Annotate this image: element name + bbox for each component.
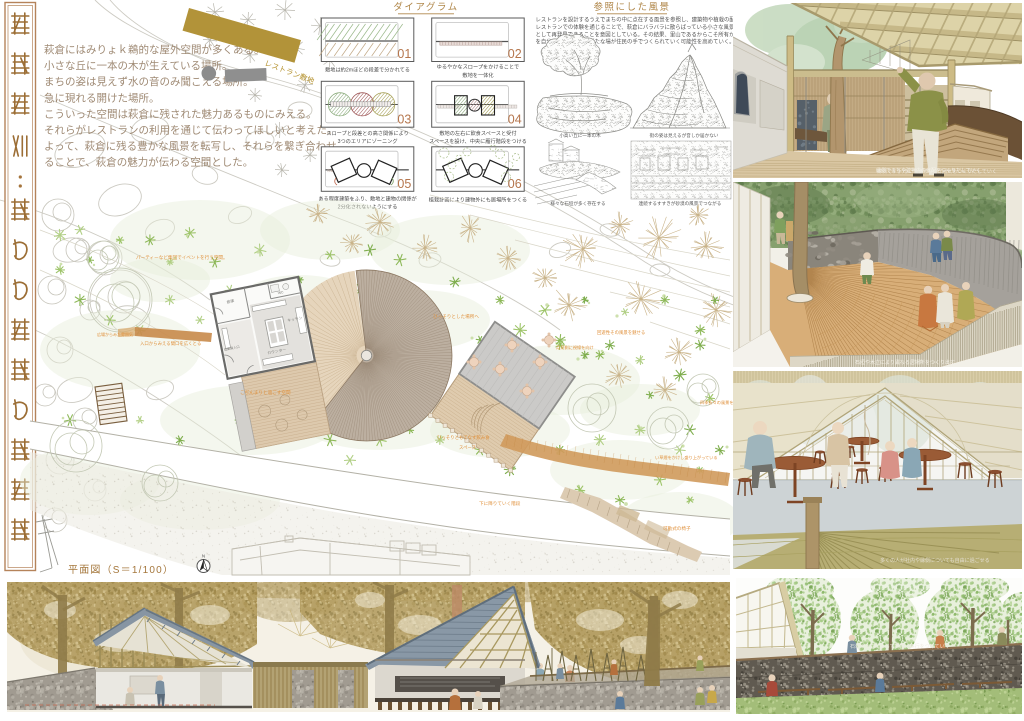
- svg-text:月見側に視線を向け: 月見側に視線を向け: [556, 344, 594, 351]
- svg-text:敷地を一体化: 敷地を一体化: [462, 71, 493, 79]
- svg-text:06: 06: [508, 177, 522, 191]
- svg-text:様々な石垣が多く存在する: 様々な石垣が多く存在する: [550, 200, 605, 207]
- svg-text:01: 01: [397, 47, 411, 61]
- svg-text:05: 05: [397, 177, 411, 191]
- svg-text:下に降りていく階段: 下に降りていく階段: [479, 500, 521, 507]
- svg-text:連続するすすきが砂漠の風景でつながる: 連続するすすきが砂漠の風景でつながる: [639, 200, 722, 207]
- svg-text:ひっそりともてなす飲み食: ひっそりともてなす飲み食: [437, 434, 490, 441]
- svg-text:ダイアグラム: ダイアグラム: [393, 1, 458, 13]
- svg-text:04: 04: [508, 113, 522, 127]
- svg-text:敷地の左右に飲食スペースと受付: 敷地の左右に飲食スペースと受付: [439, 129, 516, 137]
- svg-text:入口からみえる間口を広くとる: 入口からみえる間口を広くとる: [140, 340, 201, 347]
- svg-text:植栽計画により建物外にも居場所をつくる: 植栽計画により建物外にも居場所をつくる: [429, 196, 527, 204]
- svg-text:まちの姿は見えず水の音のみ聞こえる場所。: まちの姿は見えず水の音のみ聞こえる場所。: [44, 75, 254, 88]
- svg-text:それらがレストランの利用を通じて伝わってほしいと考えた。: それらがレストランの利用を通じて伝わってほしいと考えた。: [44, 124, 337, 137]
- svg-text:スペースを設け、中央に雁行階段をつける: スペースを設け、中央に雁行階段をつける: [429, 137, 527, 145]
- svg-text:よって、萩倉に残る豊かな風景を転写し、それらを繋ぎ合わせ: よって、萩倉に残る豊かな風景を転写し、それらを繋ぎ合わせ: [44, 140, 337, 153]
- svg-text:敷地は約2mほどの段差で分かれてる: 敷地は約2mほどの段差で分かれてる: [325, 66, 410, 74]
- svg-text:石垣や木立によって場所に奥行をつけていく: 石垣や木立によって場所に奥行をつけていく: [850, 643, 950, 650]
- svg-text:こういった空間は萩倉に残された魅力あるものにみえる。: こういった空間は萩倉に残された魅力あるものにみえる。: [44, 107, 317, 120]
- svg-text:02: 02: [508, 47, 522, 61]
- svg-text:急に現れる開けた場所。: 急に現れる開けた場所。: [44, 91, 160, 104]
- svg-text:N: N: [202, 554, 205, 559]
- svg-text:03: 03: [397, 113, 411, 127]
- svg-text:い草煙をかけし盛り上がっている: い草煙をかけし盛り上がっている: [655, 454, 718, 461]
- svg-text:街の姿は見えるが音しか届かない: 街の姿は見えるが音しか届かない: [650, 132, 719, 139]
- svg-text:ることで、萩倉の魅力が伝わる空間とした。: ることで、萩倉の魅力が伝わる空間とした。: [44, 156, 253, 169]
- svg-text:こぢんまりと過ごす空間: こぢんまりと過ごす空間: [240, 389, 291, 396]
- svg-text:可動式の椅子: 可動式の椅子: [663, 525, 691, 532]
- svg-text:ゆるやかなスロープをかけることで: ゆるやかなスロープをかけることで: [437, 63, 520, 71]
- svg-text:スペース: スペース: [459, 445, 476, 450]
- svg-text:萩倉にはみりょｋ鵜的な屋外空間が多くある。: 萩倉にはみりょｋ鵜的な屋外空間が多くある。: [44, 43, 265, 56]
- svg-text:回遊性その風景を魅せる: 回遊性その風景を魅せる: [597, 329, 645, 336]
- svg-text:ひっそりとした場所へ: ひっそりとした場所へ: [433, 313, 479, 320]
- svg-text:3つのエリアにゾーニング: 3つのエリアにゾーニング: [338, 137, 398, 145]
- svg-text:平面図（S＝1/100）: 平面図（S＝1/100）: [68, 564, 174, 576]
- svg-text:スロープと段差との高さ関係により: スロープと段差との高さ関係により: [326, 129, 409, 137]
- svg-text:小高い丘に一本の木: 小高い丘に一本の木: [559, 132, 601, 139]
- svg-text:参照にした風景: 参照にした風景: [593, 1, 670, 13]
- svg-text:広場からみた雰囲気: 広場からみた雰囲気: [97, 331, 133, 337]
- svg-text:多くの人が社内や縁側についても自由に過ごせる: 多くの人が社内や縁側についても自由に過ごせる: [880, 557, 990, 564]
- svg-text:縁側です手元に干渉地内と雰囲気をつくりだしていく: 縁側です手元に干渉地内と雰囲気をつくりだしていく: [877, 168, 997, 175]
- svg-text:パーティーなど集団でイベントを行う空間。: パーティーなど集団でイベントを行う空間。: [136, 254, 228, 261]
- svg-text:石垣や木立により異なる居場所をつくり出す: 石垣や木立により異なる居場所をつくり出す: [855, 359, 955, 366]
